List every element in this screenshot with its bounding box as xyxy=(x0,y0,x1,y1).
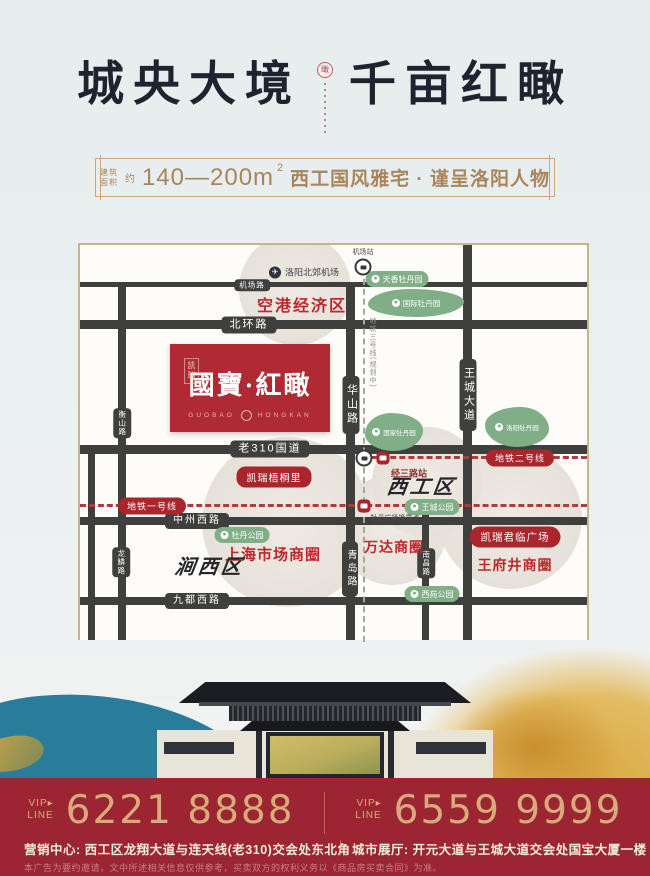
park-mudan: ● 牡丹公园 xyxy=(215,527,270,543)
road-jiudu-west xyxy=(80,597,587,605)
vip-label-bottom: LINE xyxy=(355,810,381,823)
road-label-hengshan: 衡山路 xyxy=(113,408,131,438)
road-beihuan xyxy=(80,320,587,329)
logo-latin-row: GUOBAO HONGKAN xyxy=(188,410,311,421)
location-map: 地铁三号线(规划中) 地铁一号线 地铁二号线 机场站 经三路站 牡丹广场换乘点 … xyxy=(78,243,589,644)
area-label-line1: 建筑 xyxy=(100,168,118,177)
road-wangcheng-avenue xyxy=(463,245,472,642)
tagline: 西工国风雅宅 · 谨呈洛阳人物 xyxy=(290,164,550,191)
footer: VIP▸ LINE 6221 8888 VIP▸ LINE 6559 9999 … xyxy=(0,778,650,876)
building-roof xyxy=(179,682,471,703)
city-hall-address: 城市展厅: 开元大道与王城大道交会处国宝大厦一楼 xyxy=(352,839,647,858)
road-label-jichang: 机场路 xyxy=(234,279,270,291)
park-pin-icon: ● xyxy=(411,590,419,598)
approx-label: 约 xyxy=(125,170,135,185)
title-right: 千亩红瞰 xyxy=(349,54,573,116)
disclaimer-text: 本广告为要约邀请，文中所述相关信息仅供参考，买卖双方的权利义务以《商品房买卖合同… xyxy=(24,861,442,874)
park-tianxiang: ● 天香牡丹园 xyxy=(366,271,429,287)
logo-latin-right: HONGKAN xyxy=(258,412,312,419)
building-pillar-left xyxy=(256,728,262,778)
building-lattice xyxy=(229,706,421,721)
park-pin-icon: ● xyxy=(411,503,419,511)
airport-station-label: 机场站 xyxy=(353,247,374,257)
park-tianxiang-label: 天香牡丹园 xyxy=(383,274,423,285)
park-wangcheng-label: 王城公园 xyxy=(422,502,454,513)
building-panel-right xyxy=(416,742,486,754)
phone-number-left: 6221 8888 xyxy=(66,788,295,833)
road-label-longlin: 龙鳞路 xyxy=(112,547,130,577)
logo-brand: 凯瑞 xyxy=(184,358,199,384)
park-pin-icon: ● xyxy=(392,299,400,307)
mudan-transfer-icon xyxy=(358,500,371,513)
phone-divider xyxy=(324,792,325,834)
logo-name: 國寶·紅瞰 xyxy=(189,365,312,402)
area-label-line2: 面积 xyxy=(100,178,118,187)
phone-group-left: VIP▸ LINE 6221 8888 xyxy=(0,784,322,836)
area-range: 140—200m xyxy=(142,164,274,192)
wutongli-pill: 凯瑞梧桐里 xyxy=(237,467,312,488)
jingsan-station-icon xyxy=(356,450,373,467)
header-title-row: 城央大境 瞰 千亩红瞰 xyxy=(0,54,650,135)
jingsan-metro-icon xyxy=(377,452,390,465)
seal-icon: 瞰 xyxy=(317,62,333,78)
building-illustration xyxy=(0,640,650,778)
title-left: 城央大境 xyxy=(77,54,301,116)
area-label: 建筑 面积 xyxy=(100,168,118,186)
logo-latin-left: GUOBAO xyxy=(188,412,235,419)
building-panel-left xyxy=(164,742,234,754)
address-divider xyxy=(340,840,341,855)
plane-icon: ✈ xyxy=(269,266,281,278)
road-west-minor xyxy=(88,445,95,642)
building-pillar-right xyxy=(388,728,394,778)
metro-line1-pill: 地铁一号线 xyxy=(118,498,186,515)
vip-line-label: VIP▸ LINE xyxy=(27,798,53,823)
metro-planned-label: 地铁三号线(规划中) xyxy=(367,317,377,388)
road-label-wangcheng: 王城大道 xyxy=(460,359,477,431)
road-zhongzhou-west xyxy=(80,517,587,525)
seal-character: 瞰 xyxy=(321,66,329,74)
vip-label-bottom: LINE xyxy=(27,810,53,823)
vip-label-top: VIP▸ xyxy=(29,798,54,811)
airport-station-icon xyxy=(355,259,372,276)
building-mural xyxy=(266,732,384,778)
park-pin-icon: ● xyxy=(221,531,229,539)
park-guojia-label: 国家牡丹园 xyxy=(383,427,416,437)
park-pin-icon: ● xyxy=(495,423,503,431)
mudan-transfer-label: 牡丹广场换乘点 xyxy=(371,513,420,523)
road-label-beihuan: 北环路 xyxy=(222,317,277,334)
sales-center-address: 营销中心: 西工区龙翔大道与连天线(老310)交会处东北角 xyxy=(24,839,350,858)
road-jichang xyxy=(80,282,587,287)
road-label-qingdao: 青岛路 xyxy=(342,542,358,597)
park-pin-icon: ● xyxy=(372,275,380,283)
park-luoyang-mudan: ●洛阳牡丹园 xyxy=(485,407,549,447)
road-hengshan xyxy=(118,282,126,642)
area-range-sup: 2 xyxy=(277,159,283,174)
road-label-lao310: 老310国道 xyxy=(230,441,309,458)
vip-label-top: VIP▸ xyxy=(357,798,382,811)
park-guoji: ●国际牡丹园 xyxy=(368,289,464,317)
airport-economic-zone-label: 空港经济区 xyxy=(257,292,347,316)
wangfujing-circle-label: 王府井商圈 xyxy=(478,555,553,575)
park-xiyuan: ● 西苑公园 xyxy=(405,586,460,602)
park-pin-icon: ● xyxy=(372,428,380,436)
logo-seal-icon xyxy=(241,410,252,421)
phone-number-right: 6559 9999 xyxy=(394,788,623,833)
park-luoyang-mudan-label: 洛阳牡丹园 xyxy=(506,422,539,432)
wanda-circle-label: 万达商圈 xyxy=(364,537,424,557)
road-label-huashan: 华山路 xyxy=(343,376,360,434)
district-xigong: 西工区 xyxy=(385,471,458,500)
phone-group-right: VIP▸ LINE 6559 9999 xyxy=(328,784,650,836)
seal-divider: 瞰 xyxy=(317,54,333,135)
metro-line2-pill: 地铁二号线 xyxy=(486,450,554,467)
project-logo: 凯瑞 國寶·紅瞰 GUOBAO HONGKAN xyxy=(170,344,330,432)
district-jianxi: 涧西区 xyxy=(173,551,246,580)
seal-dotted-line xyxy=(324,83,326,135)
subtitle-banner: 建筑 面积 约 140—200m 2 西工国风雅宅 · 谨呈洛阳人物 xyxy=(95,158,555,197)
park-xiyuan-label: 西苑公园 xyxy=(422,589,454,600)
vip-line-label: VIP▸ LINE xyxy=(355,798,381,823)
building-inner-roof xyxy=(240,721,410,731)
road-label-jiudu: 九都西路 xyxy=(165,593,229,609)
park-guoji-label: 国际牡丹园 xyxy=(403,298,441,309)
junlin-plaza-pill: 凯瑞君临广场 xyxy=(470,527,561,548)
airport-label: 洛阳北郊机场 xyxy=(285,266,339,279)
airport-landmark: ✈ 洛阳北郊机场 xyxy=(269,266,339,279)
poster-page: 城央大境 瞰 千亩红瞰 建筑 面积 约 140—200m 2 西工国风雅宅 · … xyxy=(0,0,650,876)
park-mudan-label: 牡丹公园 xyxy=(232,530,264,541)
